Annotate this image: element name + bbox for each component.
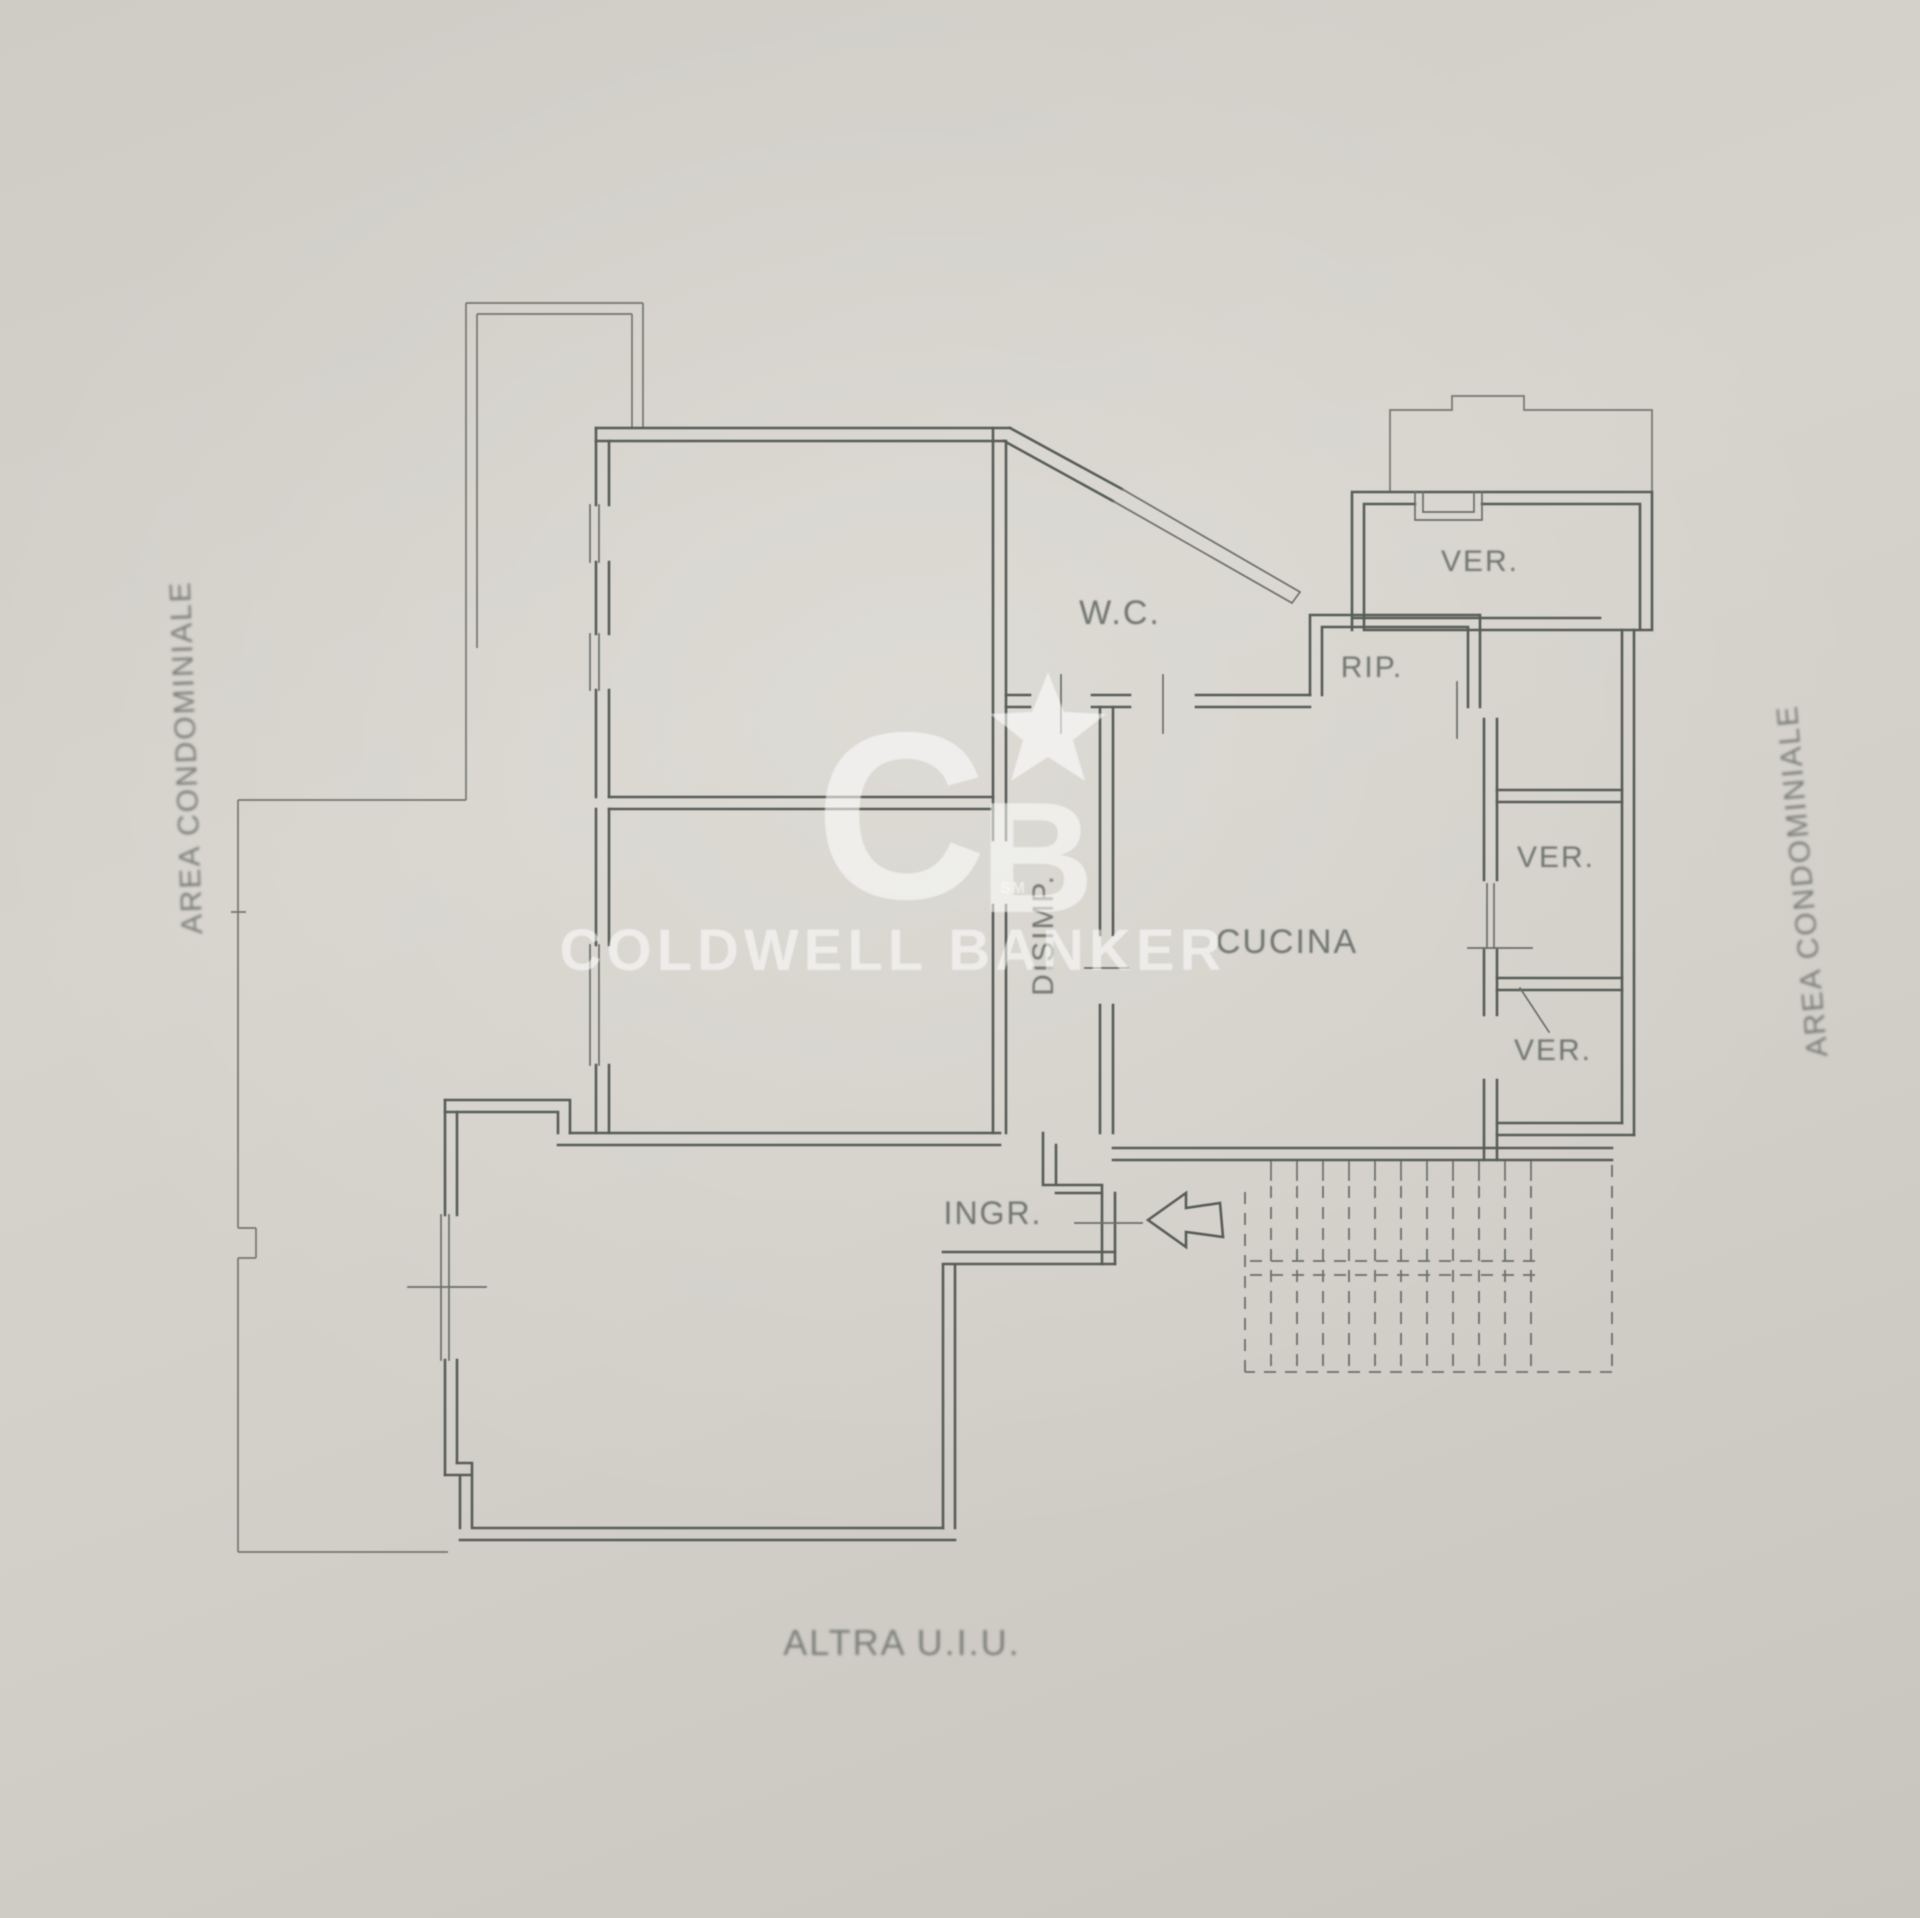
watermark-logo-sm: SM [1000,880,1026,897]
room-label-cucina: CUCINA [1216,923,1358,961]
watermark-logo-c: C [815,684,987,949]
watermark-star-icon [990,672,1106,781]
annotations-group: AREA CONDOMINIALE AREA CONDOMINIALE ALTR… [164,580,1835,1663]
room-label-ver-mid: VER. [1517,841,1595,874]
floor-plan-canvas: W.C. RIP. VER. VER. VER. CUCINA DISIMP. … [0,0,1920,1918]
watermark-brand-text: COLDWELL BANKER [560,918,1227,983]
staircase-group [1245,1162,1612,1372]
annotation-area-condominiale-right: AREA CONDOMINIALE [1771,703,1835,1059]
floor-plan-photo: W.C. RIP. VER. VER. VER. CUCINA DISIMP. … [0,0,1920,1918]
room-label-ver-low: VER. [1514,1034,1592,1067]
watermark-group: C B SM COLDWELL BANKER [560,672,1227,983]
annotation-altra-uiu: ALTRA U.I.U. [783,1622,1020,1663]
room-label-rip: RIP. [1341,651,1403,684]
room-label-ver-top: VER. [1441,545,1519,578]
entrance-arrow-icon [1148,1193,1223,1247]
boundary-top-right [1390,396,1652,492]
room-label-ingr: INGR. [944,1195,1043,1231]
room-label-wc: W.C. [1079,594,1161,632]
annotation-area-condominiale-left: AREA CONDOMINIALE [164,580,209,935]
